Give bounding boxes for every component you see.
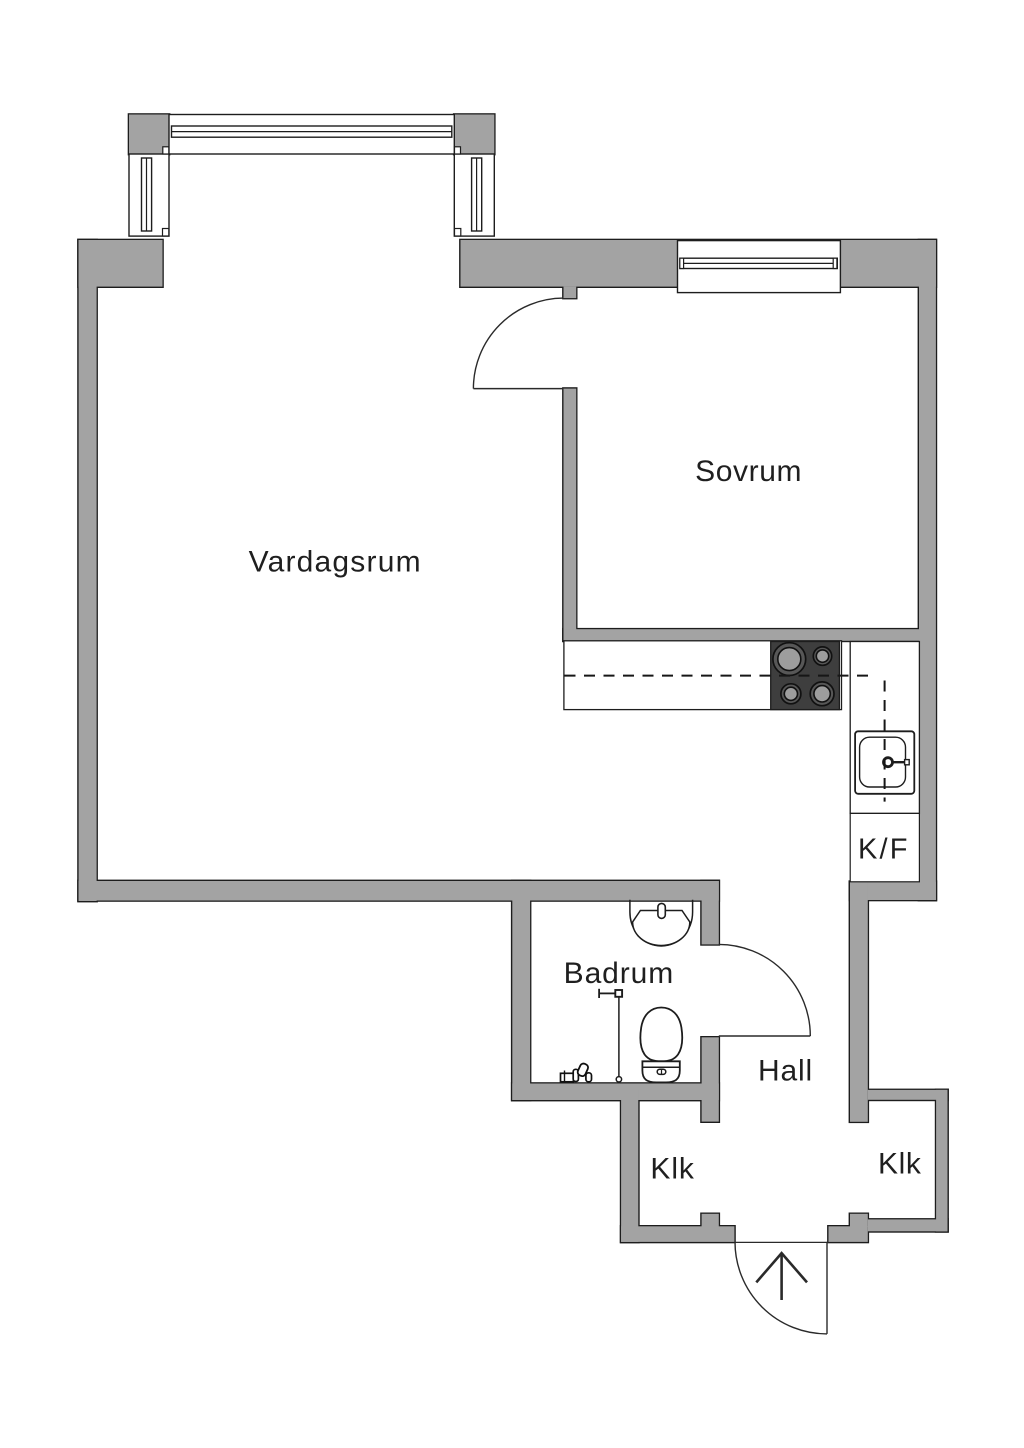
svg-text:K/F: K/F	[858, 833, 910, 865]
svg-text:Hall: Hall	[758, 1054, 813, 1087]
svg-text:Sovrum: Sovrum	[695, 455, 802, 488]
svg-text:Vardagsrum: Vardagsrum	[249, 546, 422, 579]
svg-text:Klk: Klk	[650, 1153, 694, 1186]
svg-text:Klk: Klk	[878, 1147, 922, 1180]
svg-text:Badrum: Badrum	[564, 957, 674, 990]
